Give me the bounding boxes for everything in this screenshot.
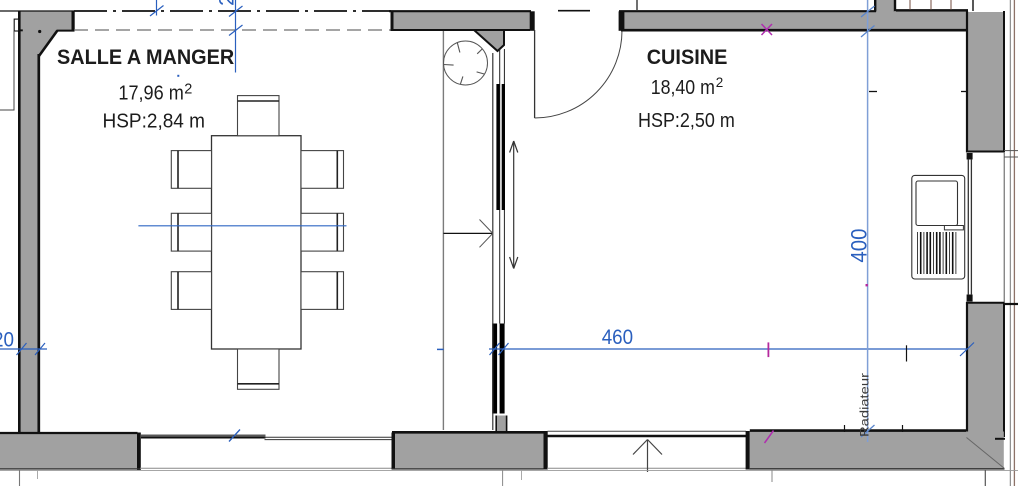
svg-text:2: 2 bbox=[716, 75, 724, 90]
svg-text:Radiateur: Radiateur bbox=[860, 373, 872, 437]
svg-text:HSP:2,84 m: HSP:2,84 m bbox=[103, 109, 206, 132]
svg-text:20: 20 bbox=[0, 329, 14, 352]
svg-text:CUISINE: CUISINE bbox=[647, 45, 728, 69]
svg-text:SALLE A MANGER: SALLE A MANGER bbox=[57, 45, 234, 69]
svg-text:17,96 m: 17,96 m bbox=[118, 81, 183, 104]
svg-text:400: 400 bbox=[847, 229, 872, 263]
svg-text:18,40 m: 18,40 m bbox=[651, 76, 715, 99]
svg-text:2: 2 bbox=[216, 0, 239, 6]
svg-text:460: 460 bbox=[602, 326, 633, 349]
svg-text:2: 2 bbox=[184, 82, 192, 98]
svg-text:HSP:2,50 m: HSP:2,50 m bbox=[638, 109, 735, 132]
